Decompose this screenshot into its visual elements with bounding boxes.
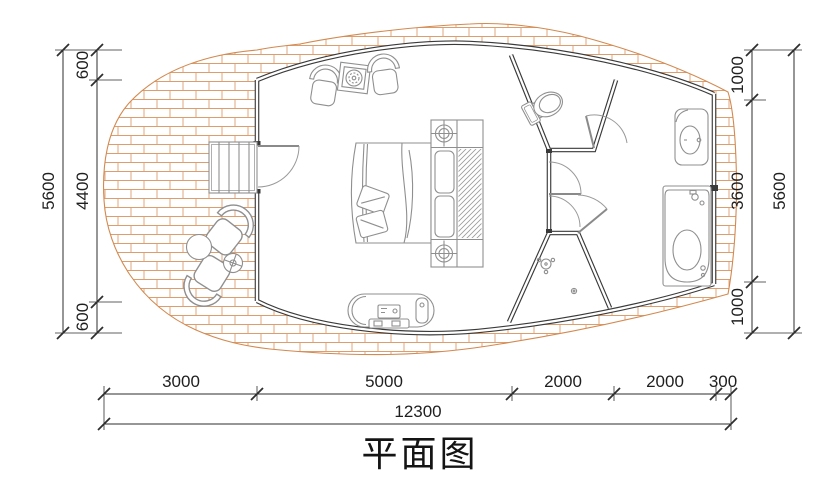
dim-left-total: 5600: [39, 172, 58, 210]
duvet: [402, 143, 431, 243]
dimension-right: 1000 3600 1000 5600: [728, 44, 802, 339]
dim-left-seg: 4400: [73, 172, 92, 210]
dim-right-seg: 1000: [728, 56, 747, 94]
vanity-sink: [675, 109, 708, 165]
floor-plan-canvas: 5600 600 4400 600 1000 3600 1000 5600: [0, 0, 837, 496]
media-counter: [348, 294, 434, 328]
floor-plan-drawing: 5600 600 4400 600 1000 3600 1000 5600: [0, 0, 837, 496]
entry-stairs: [209, 142, 257, 193]
dim-right-total: 5600: [770, 172, 789, 210]
dimension-bottom: 3000 5000 2000 2000 300 12300: [98, 372, 737, 430]
double-bed: [352, 143, 432, 243]
headboard-console: [431, 120, 483, 267]
dim-left-seg: 600: [73, 51, 92, 79]
door-jamb: [546, 229, 552, 233]
side-table: [337, 62, 370, 93]
head-pillow: [435, 151, 454, 193]
dim-bottom-seg: 3000: [162, 372, 200, 391]
dim-bottom-total: 12300: [394, 402, 441, 421]
dim-bottom-seg: 300: [709, 372, 737, 391]
dim-right-seg: 1000: [728, 288, 747, 326]
bathtub: [663, 186, 711, 286]
head-pillow: [435, 196, 454, 237]
dim-bottom-seg: 2000: [646, 372, 684, 391]
door-jamb: [546, 149, 552, 153]
dim-bottom-seg: 5000: [365, 372, 403, 391]
drawing-title: 平面图: [361, 433, 478, 474]
dim-left-seg: 600: [73, 303, 92, 331]
deck-round-table: [187, 235, 212, 260]
dim-bottom-seg: 2000: [544, 372, 582, 391]
wardrobe-hatch: [459, 149, 482, 238]
dim-right-seg: 3600: [728, 172, 747, 210]
